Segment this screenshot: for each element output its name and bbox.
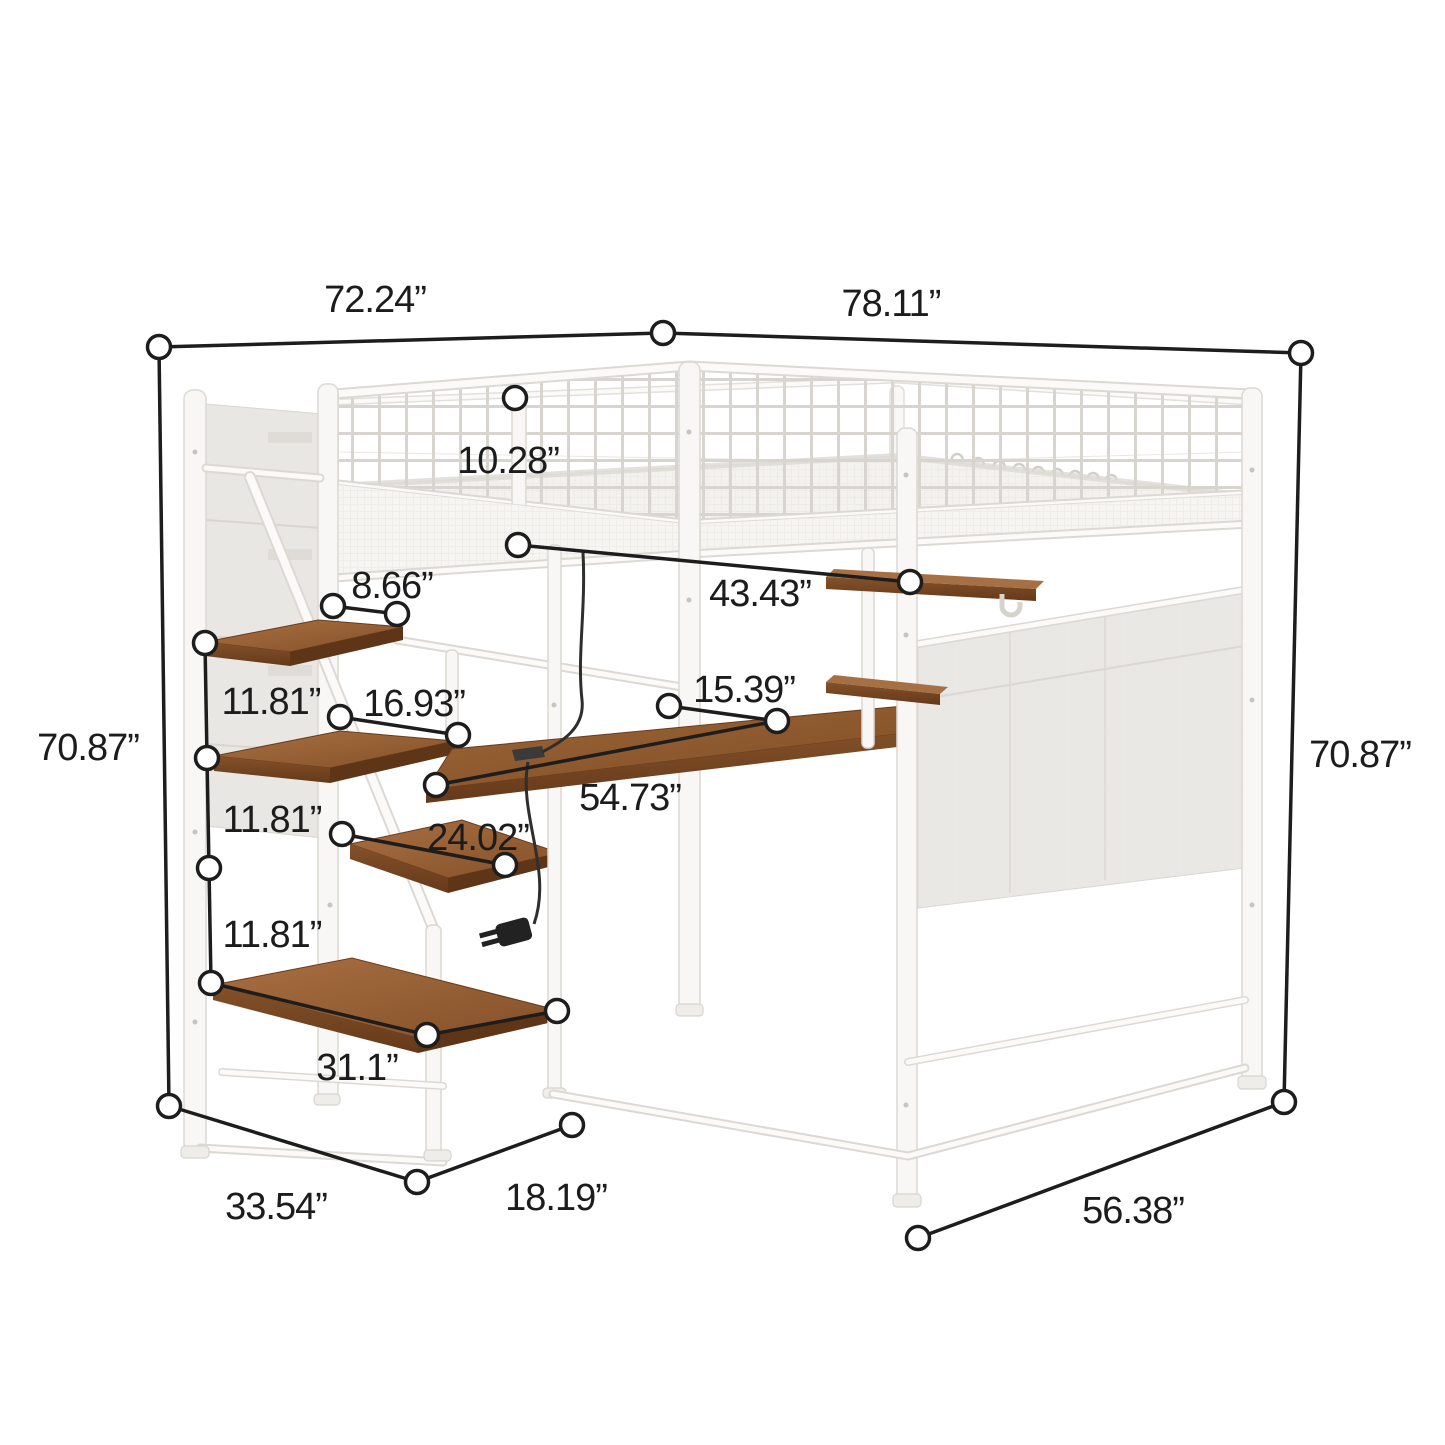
dim-line-height-left [159,347,169,1106]
dim-label-base-side-width: 56.38” [1082,1192,1184,1230]
dim-label-step-2-depth: 16.93” [363,685,465,723]
post-right [1242,388,1262,1082]
post-back-middle [897,428,917,1200]
dim-label-shelf-spacing-2: 11.81” [223,801,322,839]
dim-line-top-width-left [159,333,663,347]
dim-label-shelf-3-width: 24.02” [427,819,529,857]
dim-label-underbed-width: 43.43” [709,575,811,613]
right-mesh-panel [918,590,1244,908]
loft-bed-illustration [0,0,1445,1445]
dim-label-top-width-right: 78.11” [842,285,941,323]
dim-label-overall-height-right: 70.87” [1309,736,1411,774]
dim-label-stair-base-depth: 33.54” [225,1188,327,1226]
diagram-canvas: 72.24” 78.11” 10.28” 8.66” 43.43” 11.81”… [0,0,1445,1445]
dim-label-top-step-depth: 8.66” [351,567,433,605]
dim-label-overall-height-left: 70.87” [37,729,139,767]
dim-line-top-width-right [663,333,1301,353]
dim-label-shelf-spacing-1: 11.81” [222,683,321,721]
bottom-shelf [213,958,557,1053]
dim-label-bottom-shelf-width: 31.1” [316,1049,398,1087]
dim-label-desk-width: 54.73” [579,779,681,817]
post-back-left [184,390,206,1152]
dim-label-stair-base-side: 18.19” [505,1179,607,1217]
dim-label-top-width-left: 72.24” [324,281,426,319]
dim-line-height-right [1284,353,1301,1102]
plug-icon [478,916,533,951]
dim-label-guardrail-height: 10.28” [457,442,559,480]
dim-label-desk-depth: 15.39” [693,671,795,709]
dim-label-shelf-spacing-3: 11.81” [223,916,322,954]
